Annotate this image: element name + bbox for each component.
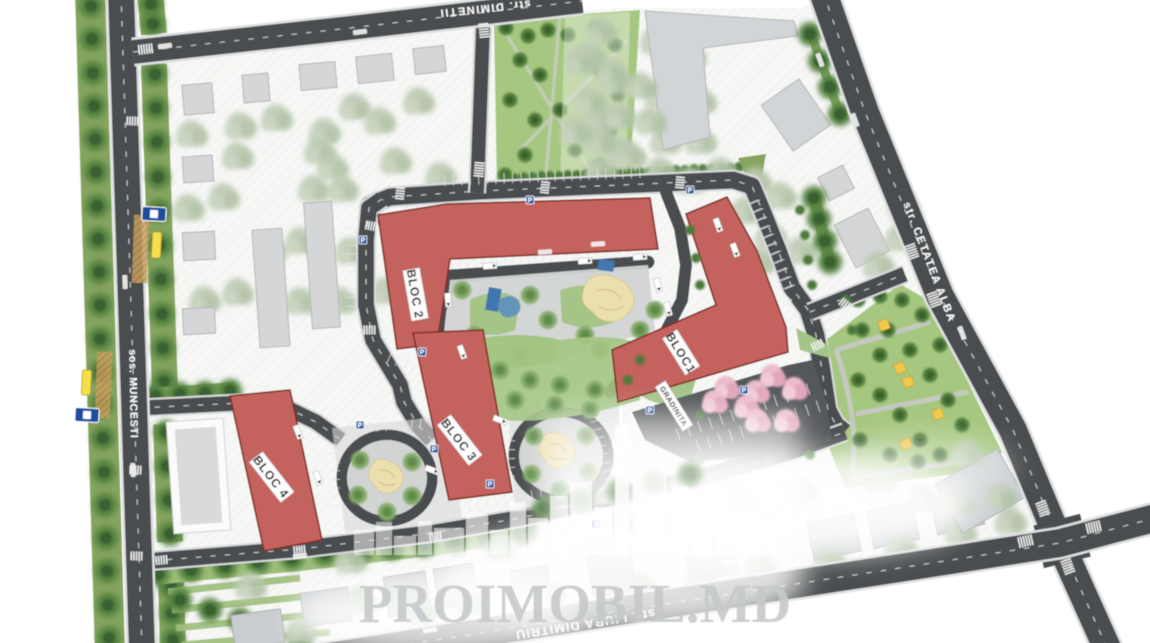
svg-text:P: P (432, 447, 437, 454)
svg-text:P: P (688, 188, 693, 195)
svg-text:P: P (420, 350, 425, 357)
svg-text:P: P (358, 423, 363, 430)
svg-text:sos. MUNCESTI: sos. MUNCESTI (126, 349, 140, 438)
svg-text:P: P (528, 198, 533, 205)
svg-text:PROIMOBIL.MD: PROIMOBIL.MD (359, 573, 791, 634)
svg-text:P: P (488, 482, 493, 489)
svg-text:P: P (361, 238, 366, 245)
svg-text:P: P (742, 388, 747, 395)
svg-text:P: P (648, 408, 653, 415)
